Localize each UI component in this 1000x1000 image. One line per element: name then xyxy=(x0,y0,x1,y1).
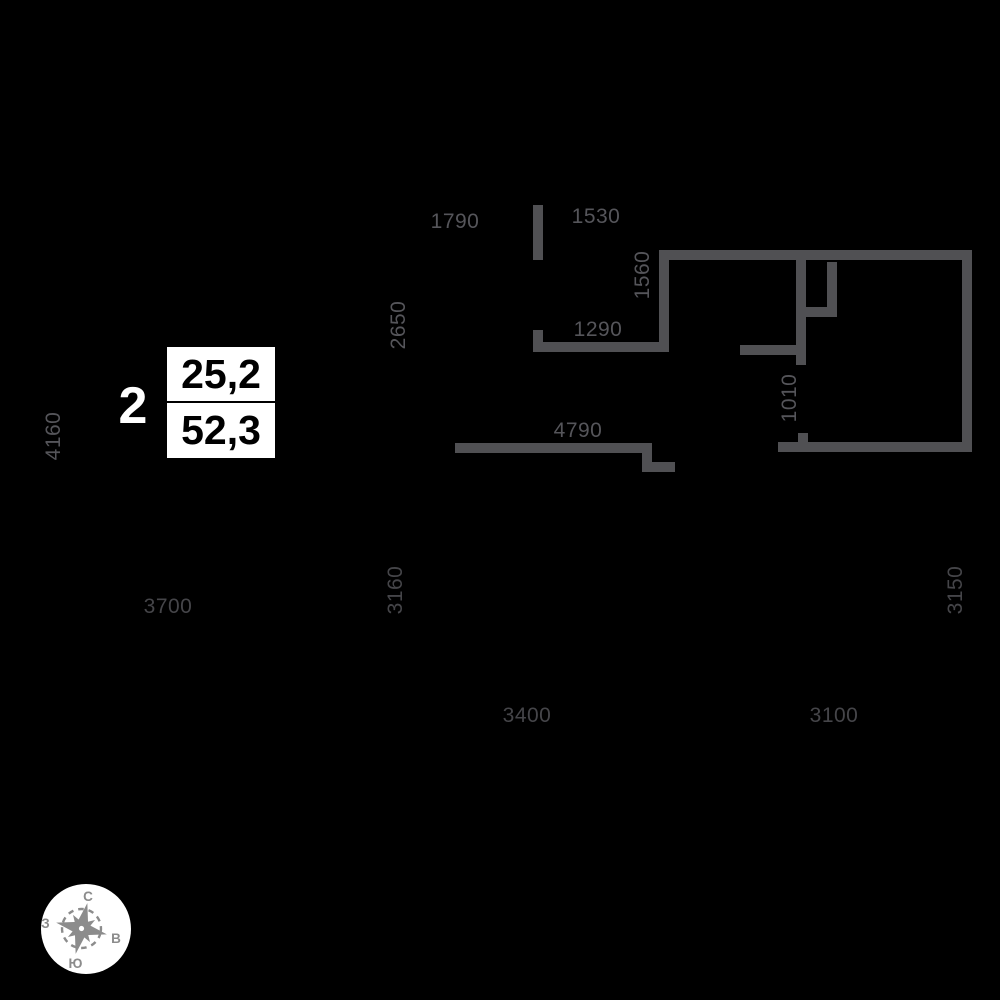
dimension-label: 1290 xyxy=(574,318,623,342)
compass-north-label: С xyxy=(83,889,93,904)
compass-west-label: З xyxy=(41,916,49,931)
dimension-label: 1560 xyxy=(631,251,655,300)
dimension-label: 3400 xyxy=(503,704,552,728)
total-area-box: 52,3 xyxy=(167,403,275,458)
living-area-box: 25,2 xyxy=(167,347,275,401)
dimension-label: 1530 xyxy=(572,205,621,229)
dimension-label: 2650 xyxy=(387,301,411,350)
total-area-value: 52,3 xyxy=(181,410,261,451)
compass-rose-icon: С З В Ю xyxy=(38,881,134,977)
dimensions-layer: 1790153026501560129041604790101037003160… xyxy=(0,0,1000,1000)
dimension-label: 3150 xyxy=(944,566,968,615)
compass-south-label: Ю xyxy=(69,956,83,971)
dimension-label: 3100 xyxy=(810,704,859,728)
dimension-label: 4160 xyxy=(42,412,66,461)
dimension-label: 3700 xyxy=(144,595,193,619)
dimension-label: 3160 xyxy=(384,566,408,615)
floorplan-canvas: 1790153026501560129041604790101037003160… xyxy=(0,0,1000,1000)
unit-number: 2 xyxy=(119,380,148,432)
dimension-label: 4790 xyxy=(554,419,603,443)
living-area-value: 25,2 xyxy=(181,354,261,395)
dimension-label: 1790 xyxy=(431,210,480,234)
dimension-label: 1010 xyxy=(778,374,802,423)
compass-east-label: В xyxy=(111,931,121,946)
